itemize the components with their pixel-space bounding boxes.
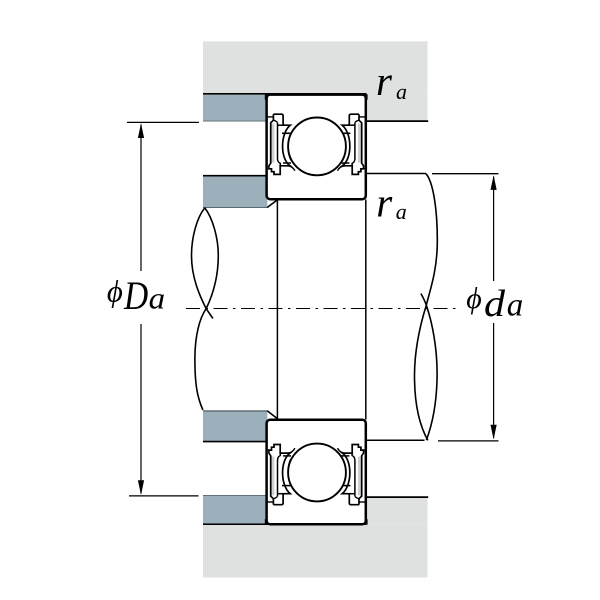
svg-text:ϕ: ϕ: [107, 274, 123, 308]
svg-text:r: r: [376, 179, 393, 225]
svg-text:d: d: [484, 283, 506, 325]
svg-text:a: a: [149, 282, 166, 316]
svg-text:a: a: [507, 288, 524, 324]
svg-text:a: a: [396, 199, 407, 224]
svg-text:ϕ: ϕ: [466, 282, 482, 315]
svg-text:a: a: [396, 79, 407, 104]
svg-text:D: D: [123, 273, 148, 318]
svg-text:r: r: [376, 58, 393, 104]
